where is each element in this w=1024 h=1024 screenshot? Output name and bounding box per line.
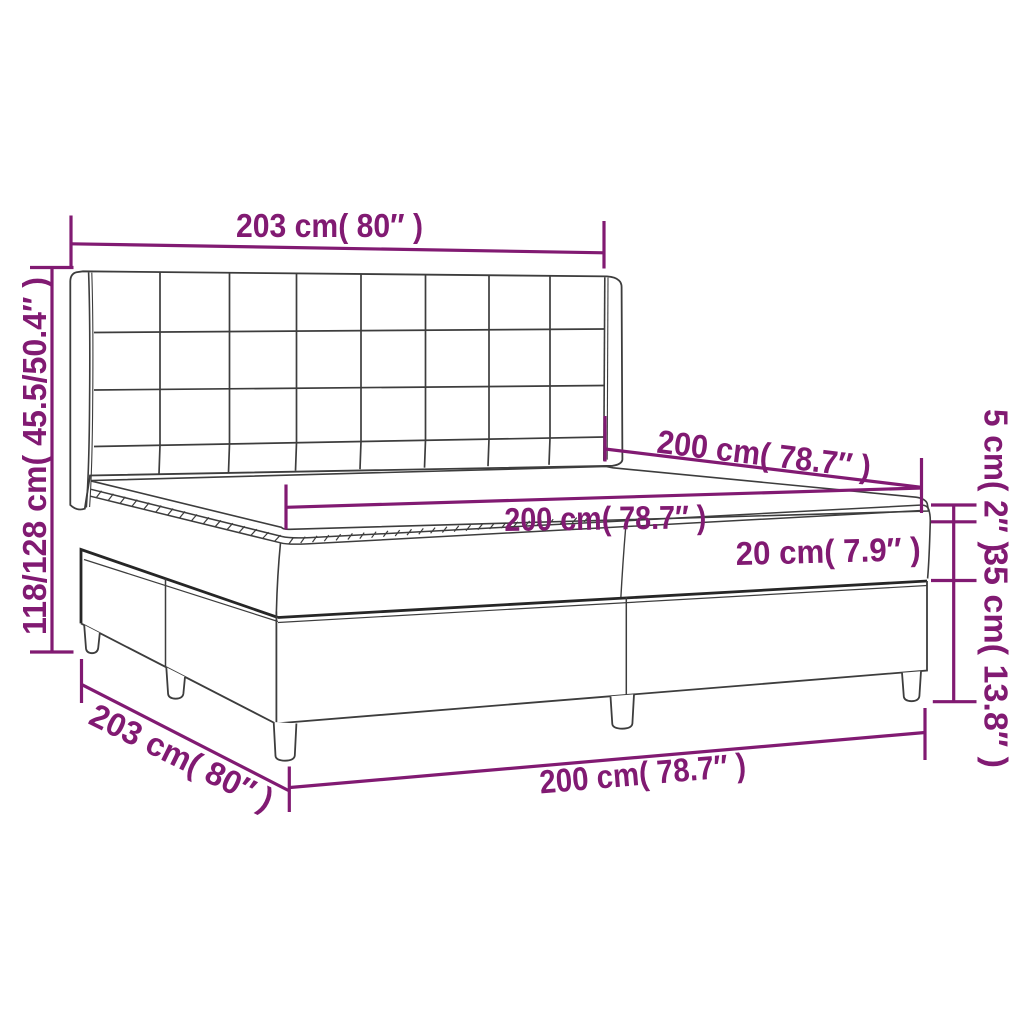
svg-text:35 cm( 13.8″ ): 35 cm( 13.8″ )	[978, 547, 1015, 768]
svg-text:20 cm( 7.9″ ): 20 cm( 7.9″ )	[735, 530, 921, 572]
svg-text:203 cm( 80″ ): 203 cm( 80″ )	[236, 207, 423, 244]
svg-text:200 cm( 78.7″ ): 200 cm( 78.7″ )	[538, 746, 747, 801]
svg-text:200 cm( 78.7″ ): 200 cm( 78.7″ )	[504, 498, 706, 538]
svg-text:5 cm( 2″ ): 5 cm( 2″ )	[978, 409, 1015, 552]
svg-text:118/128 cm( 45.5/50.4″ ): 118/128 cm( 45.5/50.4″ )	[16, 277, 53, 635]
svg-text:203 cm( 80″ ): 203 cm( 80″ )	[84, 696, 280, 818]
